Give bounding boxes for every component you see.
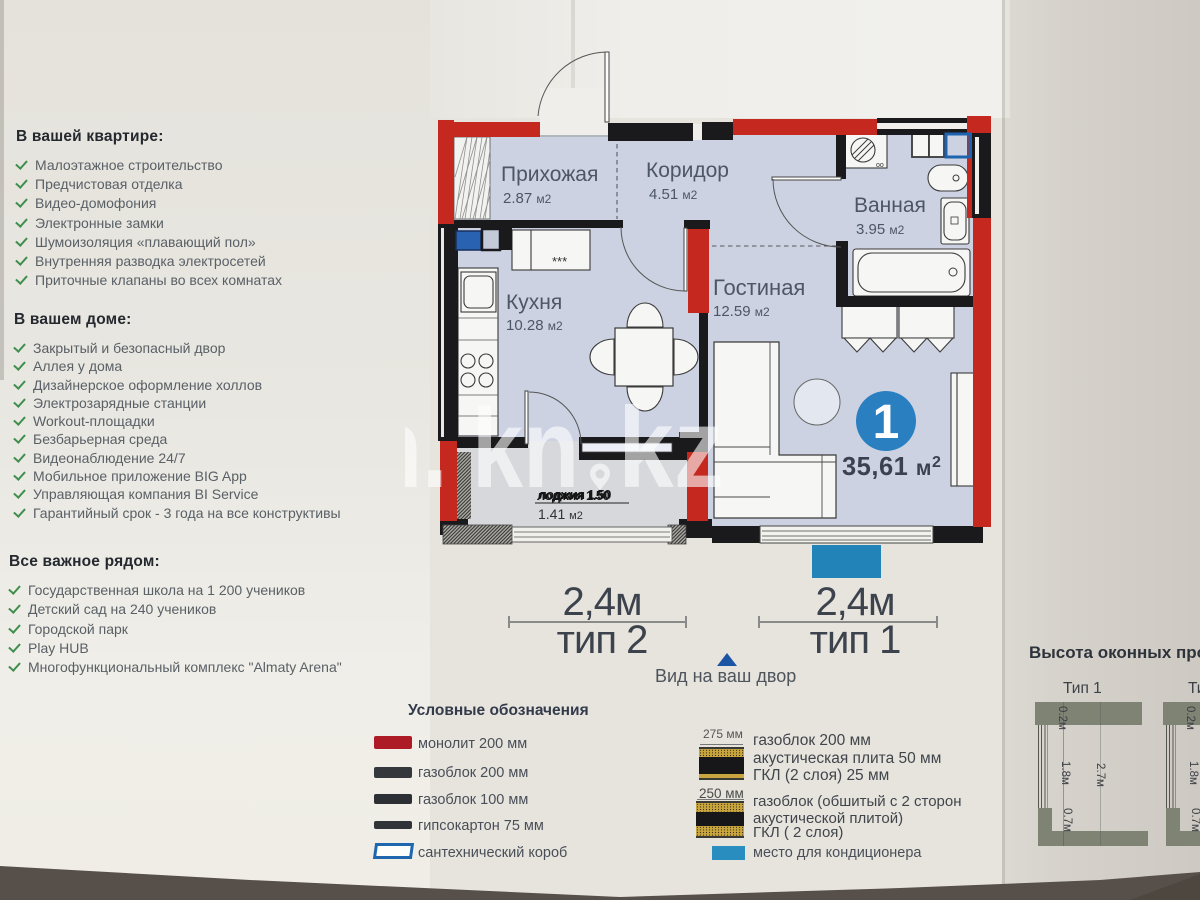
svg-text:kz: kz xyxy=(618,384,724,511)
svg-text:Гостиная: Гостиная xyxy=(713,275,805,300)
svg-text:35,61 м2: 35,61 м2 xyxy=(842,453,941,481)
svg-text:Кухня: Кухня xyxy=(506,291,562,314)
svg-text:3.95 м2: 3.95 м2 xyxy=(856,221,905,238)
svg-text:4.51 м2: 4.51 м2 xyxy=(649,186,698,203)
svg-text:Ванная: Ванная xyxy=(854,194,926,217)
svg-text:Коридор: Коридор xyxy=(646,159,729,182)
svg-text:n.: n. xyxy=(405,385,448,511)
svg-text:***: *** xyxy=(552,254,567,269)
svg-text:oo: oo xyxy=(876,162,884,169)
svg-text:Прихожая: Прихожая xyxy=(501,163,598,186)
svg-text:10.28 м2: 10.28 м2 xyxy=(506,317,563,334)
svg-text:2.87 м2: 2.87 м2 xyxy=(503,190,552,207)
svg-text:12.59 м2: 12.59 м2 xyxy=(713,303,770,320)
svg-text:kn: kn xyxy=(472,385,579,511)
svg-text:1: 1 xyxy=(873,396,900,449)
